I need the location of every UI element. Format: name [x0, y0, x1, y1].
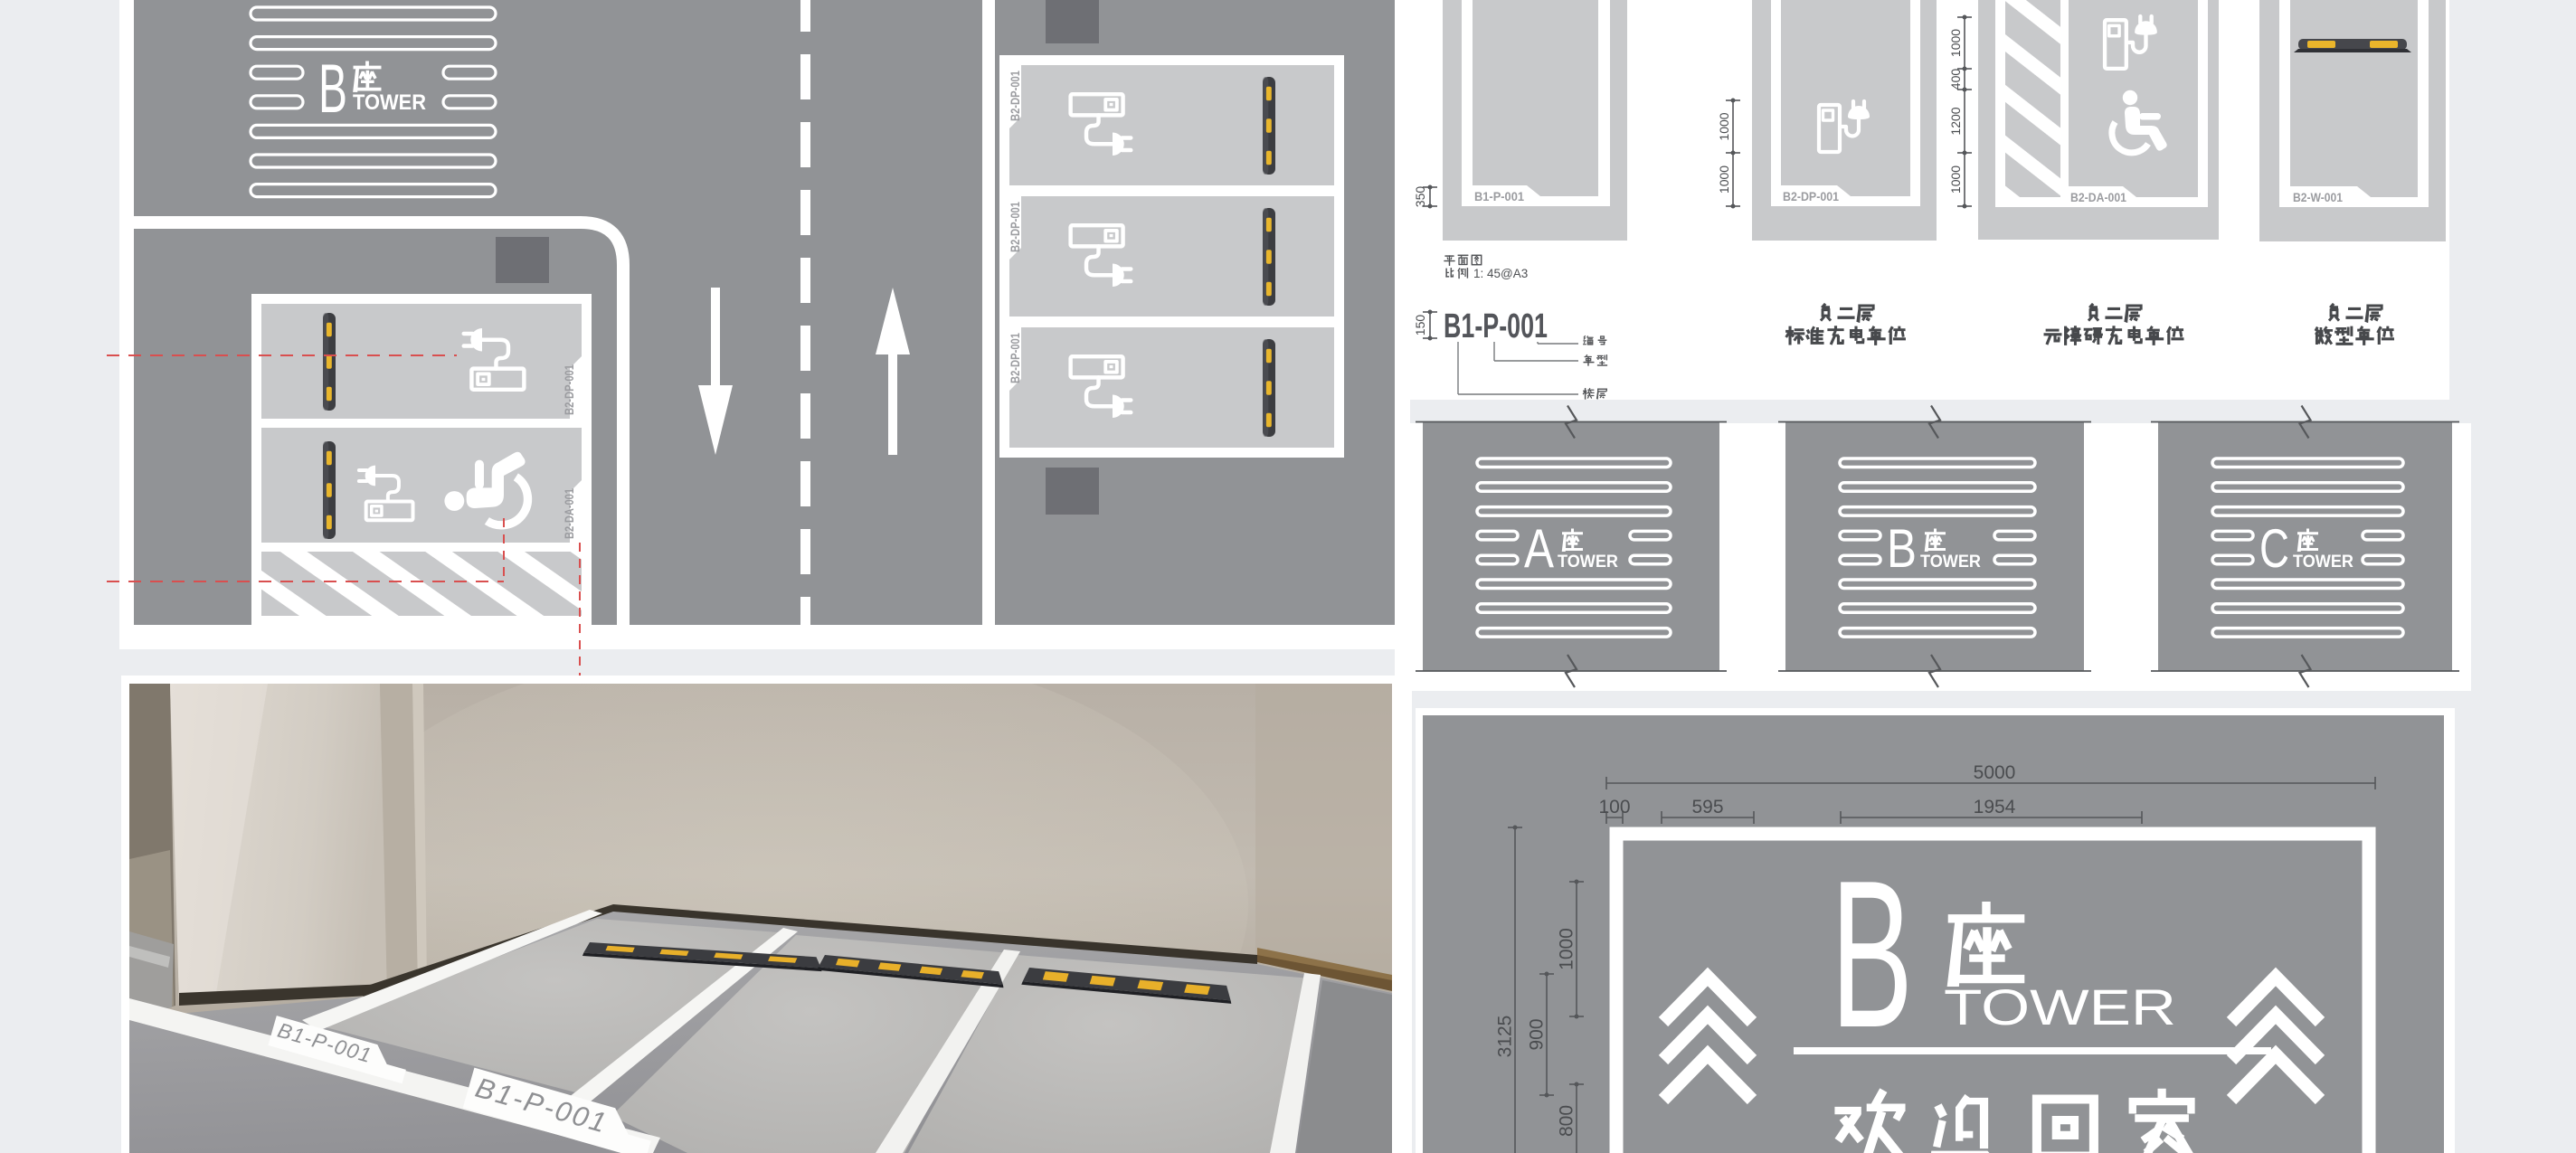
svg-text:1000: 1000	[1948, 29, 1963, 57]
svg-text:595: 595	[1691, 797, 1723, 817]
svg-text:1: 45@A3: 1: 45@A3	[1473, 267, 1528, 280]
svg-text:800: 800	[1556, 1105, 1577, 1137]
svg-text:100: 100	[1598, 797, 1630, 817]
svg-text:1000: 1000	[1717, 112, 1731, 140]
svg-text:B2-DP-001: B2-DP-001	[1783, 189, 1839, 203]
svg-text:1954: 1954	[1974, 797, 2016, 817]
svg-text:B: B	[1887, 518, 1917, 579]
svg-text:5000: 5000	[1974, 762, 2016, 783]
svg-text:B: B	[318, 51, 347, 128]
svg-text:TOWER: TOWER	[1920, 553, 1981, 572]
svg-text:1000: 1000	[1717, 165, 1731, 194]
svg-text:B2-DA-001: B2-DA-001	[2070, 190, 2126, 204]
svg-text:B2-DP-001: B2-DP-001	[1009, 71, 1022, 121]
svg-text:B2-DP-001: B2-DP-001	[1009, 333, 1022, 383]
svg-text:B2-DP-001: B2-DP-001	[1009, 202, 1022, 252]
svg-text:TOWER: TOWER	[1558, 553, 1618, 572]
svg-text:B2-DP-001: B2-DP-001	[563, 364, 576, 415]
svg-text:900: 900	[1526, 1018, 1547, 1050]
svg-text:B: B	[1831, 837, 1913, 1072]
svg-text:B1-P-001: B1-P-001	[1444, 307, 1548, 345]
svg-text:1000: 1000	[1556, 928, 1577, 970]
svg-text:3125: 3125	[1494, 1016, 1515, 1058]
svg-text:TOWER: TOWER	[2293, 553, 2353, 572]
svg-text:B2-W-001: B2-W-001	[2293, 190, 2343, 204]
svg-text:150: 150	[1413, 315, 1427, 336]
svg-text:TOWER: TOWER	[1944, 978, 2176, 1035]
svg-text:A: A	[1524, 518, 1554, 579]
svg-text:TOWER: TOWER	[353, 90, 426, 115]
svg-text:C: C	[2259, 518, 2289, 579]
svg-text:1000: 1000	[1948, 165, 1963, 194]
svg-text:B2-DA-001: B2-DA-001	[563, 488, 576, 539]
svg-text:1200: 1200	[1948, 107, 1963, 135]
svg-text:B1-P-001: B1-P-001	[1474, 189, 1524, 203]
svg-text:400: 400	[1948, 69, 1963, 90]
svg-text:350: 350	[1413, 186, 1427, 208]
